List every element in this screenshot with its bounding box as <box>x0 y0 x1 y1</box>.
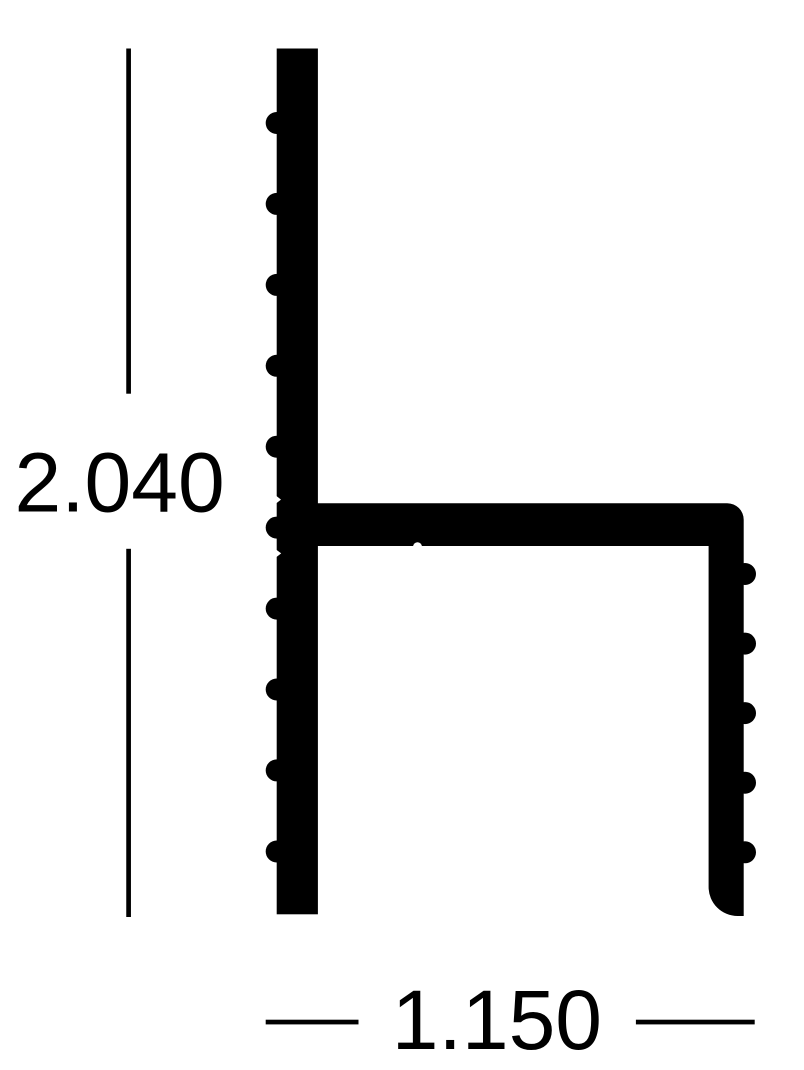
svg-text:2.040: 2.040 <box>15 436 225 530</box>
svg-text:1.150: 1.150 <box>392 973 602 1067</box>
